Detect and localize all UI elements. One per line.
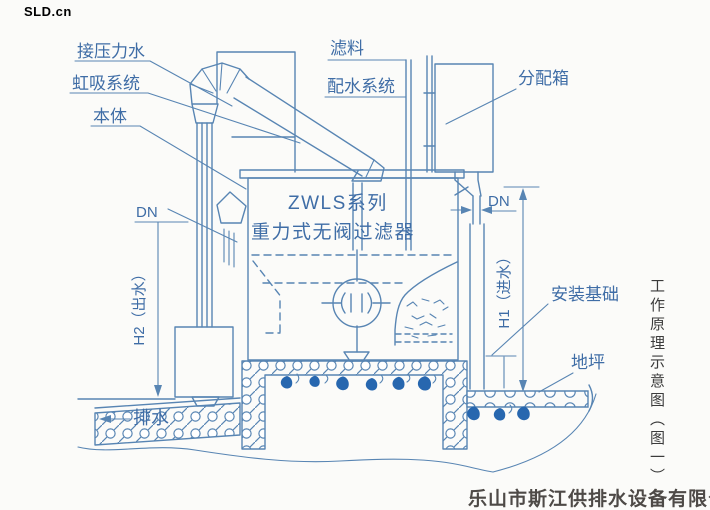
siphon-system-label: 虹吸系统 (72, 74, 140, 93)
h2-outlet-label: H2（出水） (131, 266, 148, 345)
product-series-label: ZWLS系列 (288, 192, 388, 214)
installation-foundation-label: 安装基础 (551, 285, 619, 304)
siphon-elbow (190, 63, 249, 104)
filter-schematic-drawing: DN H1（进水） DN H2（出水） 接压力水 虹吸系统 本体 (0, 0, 710, 510)
product-name-label: 重力式无阀过滤器 (251, 221, 415, 243)
callout-filter-media: 滤料 (328, 39, 406, 60)
watermark: SLD.cn (24, 4, 72, 19)
nozzle-device (217, 192, 246, 267)
water-distribution-system-label: 配水系统 (327, 77, 395, 96)
inlet-pipe (455, 187, 484, 389)
callout-distribution-box: 分配箱 (446, 69, 569, 124)
drain-label: 排水 (133, 408, 169, 428)
dn-outlet-label: DN (136, 204, 158, 221)
callout-ground-level: 地坪 (539, 353, 605, 392)
ground-slab (467, 385, 593, 411)
pressure-water-label: 接压力水 (77, 42, 145, 61)
callout-body: 本体 (91, 107, 246, 189)
dimension-dn-inlet: DN (451, 193, 516, 214)
vertical-caption: 工作原理示意图（图一） (646, 278, 667, 487)
callout-water-distribution-system: 配水系统 (325, 77, 406, 97)
siphon-riser-pipes (192, 104, 218, 327)
filter-media-label: 滤料 (330, 39, 364, 58)
product-title: ZWLS系列 重力式无阀过滤器 (251, 192, 415, 243)
dn-inlet-label: DN (488, 193, 510, 210)
dimension-h2-outlet: DN H2（出水） (131, 204, 237, 397)
installation-foundation-structure (242, 352, 467, 449)
schematic-page: DN H1（进水） DN H2（出水） 接压力水 虹吸系统 本体 (0, 0, 710, 510)
ground-level-label: 地坪 (571, 353, 605, 372)
distribution-box (424, 56, 493, 196)
body-label: 本体 (93, 107, 127, 126)
company-name: 乐山市斯江供排水设备有限公司 (468, 484, 710, 510)
water-seal-box (175, 327, 233, 406)
filter-media-squiggles (405, 299, 448, 338)
h1-inlet-label: H1（进水） (496, 249, 513, 328)
distribution-box-label: 分配箱 (518, 69, 569, 88)
dimension-h1-inlet: H1（进水） (496, 187, 539, 392)
